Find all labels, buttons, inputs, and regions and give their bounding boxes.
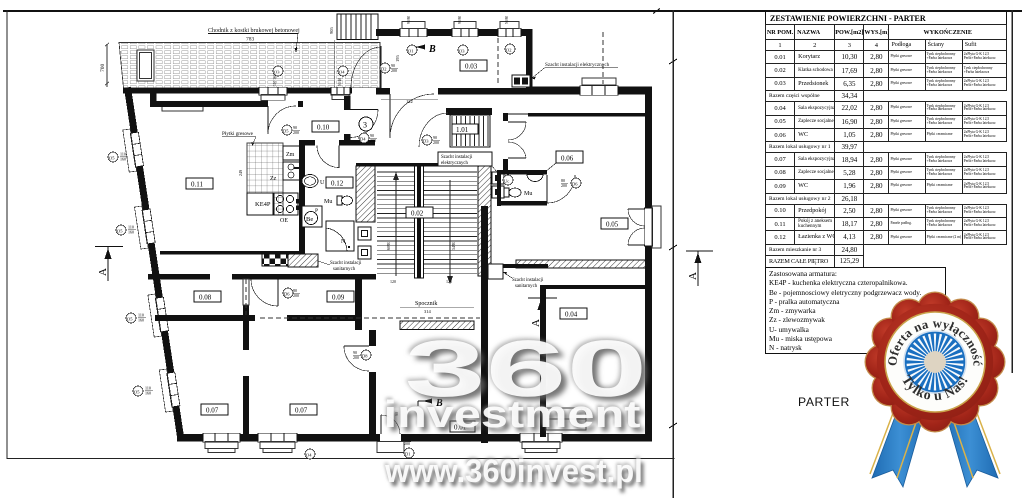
- svg-text:200: 200: [433, 140, 439, 145]
- svg-text:200: 200: [293, 293, 299, 298]
- svg-text:0.05: 0.05: [606, 221, 619, 229]
- svg-text:0.11: 0.11: [191, 181, 203, 189]
- svg-text:Szacht instalacji: Szacht instalacji: [512, 278, 544, 283]
- svg-text:120: 120: [446, 279, 452, 284]
- svg-text:1.01: 1.01: [456, 126, 469, 134]
- svg-text:P: P: [315, 208, 318, 214]
- svg-text:0.07: 0.07: [206, 407, 219, 415]
- svg-text:Zm: Zm: [286, 152, 295, 158]
- svg-text:O3: O3: [274, 69, 280, 74]
- svg-text:160: 160: [128, 230, 134, 235]
- svg-text:O5: O5: [127, 316, 133, 321]
- svg-text:110/160: 110/160: [273, 74, 277, 86]
- svg-text:D6: D6: [284, 291, 290, 296]
- svg-text:Spocznik: Spocznik: [415, 301, 437, 307]
- svg-text:A: A: [687, 272, 699, 280]
- svg-text:0.06: 0.06: [561, 155, 574, 163]
- svg-text:Mu: Mu: [524, 191, 532, 197]
- svg-text:Szacht instalacji elektrycznyc: Szacht instalacji elektrycznych: [545, 62, 610, 68]
- svg-text:Mu: Mu: [324, 199, 332, 205]
- svg-text:O4: O4: [339, 69, 345, 74]
- svg-text:KE4P: KE4P: [255, 201, 271, 208]
- svg-text:314: 314: [424, 309, 432, 314]
- svg-text:200: 200: [391, 68, 397, 73]
- svg-text:Zz: Zz: [270, 176, 277, 182]
- svg-text:0.10: 0.10: [317, 124, 330, 132]
- svg-text:0.03: 0.03: [465, 63, 478, 71]
- svg-text:D2: D2: [381, 66, 387, 71]
- svg-text:O5: O5: [134, 389, 140, 394]
- svg-text:0.07: 0.07: [295, 407, 308, 415]
- svg-text:sanitarnych: sanitarnych: [333, 267, 356, 272]
- svg-text:50/40: 50/40: [338, 78, 342, 86]
- svg-text:160: 160: [120, 157, 126, 162]
- svg-text:200: 200: [404, 441, 410, 446]
- svg-text:249: 249: [238, 170, 243, 176]
- svg-text:0.09: 0.09: [332, 294, 345, 302]
- svg-text:905: 905: [329, 27, 334, 35]
- svg-text:Uc: Uc: [504, 178, 509, 183]
- svg-text:O5: O5: [109, 155, 115, 160]
- svg-text:U: U: [320, 180, 325, 186]
- svg-text:sanitarnych: sanitarnych: [515, 284, 538, 289]
- svg-text:0.12: 0.12: [331, 180, 344, 188]
- svg-text:0.02: 0.02: [411, 210, 424, 218]
- svg-text:3: 3: [363, 121, 367, 130]
- svg-text:D4: D4: [360, 136, 366, 141]
- svg-text:O3: O3: [459, 48, 465, 53]
- svg-text:160: 160: [145, 391, 151, 396]
- svg-text:O1: O1: [408, 48, 414, 53]
- svg-text:D3: D3: [423, 138, 429, 143]
- svg-text:120: 120: [390, 279, 396, 284]
- svg-text:60/R: 60/R: [386, 242, 391, 250]
- svg-text:90/80: 90/80: [407, 16, 411, 24]
- svg-text:0.04: 0.04: [565, 311, 578, 319]
- svg-text:A: A: [97, 268, 109, 276]
- svg-text:54/R: 54/R: [451, 242, 456, 250]
- svg-text:O4: O4: [306, 452, 312, 457]
- svg-text:90/80: 90/80: [458, 16, 462, 24]
- svg-text:Szacht instalacji: Szacht instalacji: [330, 261, 362, 266]
- svg-text:200: 200: [370, 138, 376, 143]
- svg-text:B: B: [428, 44, 436, 55]
- svg-text:0.08: 0.08: [199, 294, 212, 302]
- svg-text:D5: D5: [283, 128, 289, 133]
- svg-text:195: 195: [395, 55, 400, 63]
- svg-text:OE: OE: [280, 218, 288, 224]
- svg-text:200: 200: [561, 183, 567, 188]
- svg-text:D6: D6: [572, 181, 578, 186]
- svg-text:O5: O5: [117, 228, 123, 233]
- svg-text:700: 700: [100, 64, 106, 73]
- svg-text:122: 122: [406, 99, 413, 104]
- svg-text:N: N: [341, 239, 346, 245]
- svg-text:Chodnik z kostki brukowej beto: Chodnik z kostki brukowej betonowej: [208, 28, 300, 34]
- svg-text:160: 160: [138, 318, 144, 323]
- svg-text:783: 783: [246, 37, 255, 43]
- svg-text:elektrycznych: elektrycznych: [441, 161, 469, 166]
- svg-text:Szacht instalacji: Szacht instalacji: [441, 155, 473, 160]
- svg-text:Be: Be: [306, 216, 313, 223]
- svg-text:200: 200: [293, 130, 299, 135]
- svg-text:Płytki gresowe: Płytki gresowe: [222, 131, 254, 137]
- svg-text:O2: O2: [506, 47, 512, 52]
- svg-text:50/80: 50/80: [505, 16, 509, 24]
